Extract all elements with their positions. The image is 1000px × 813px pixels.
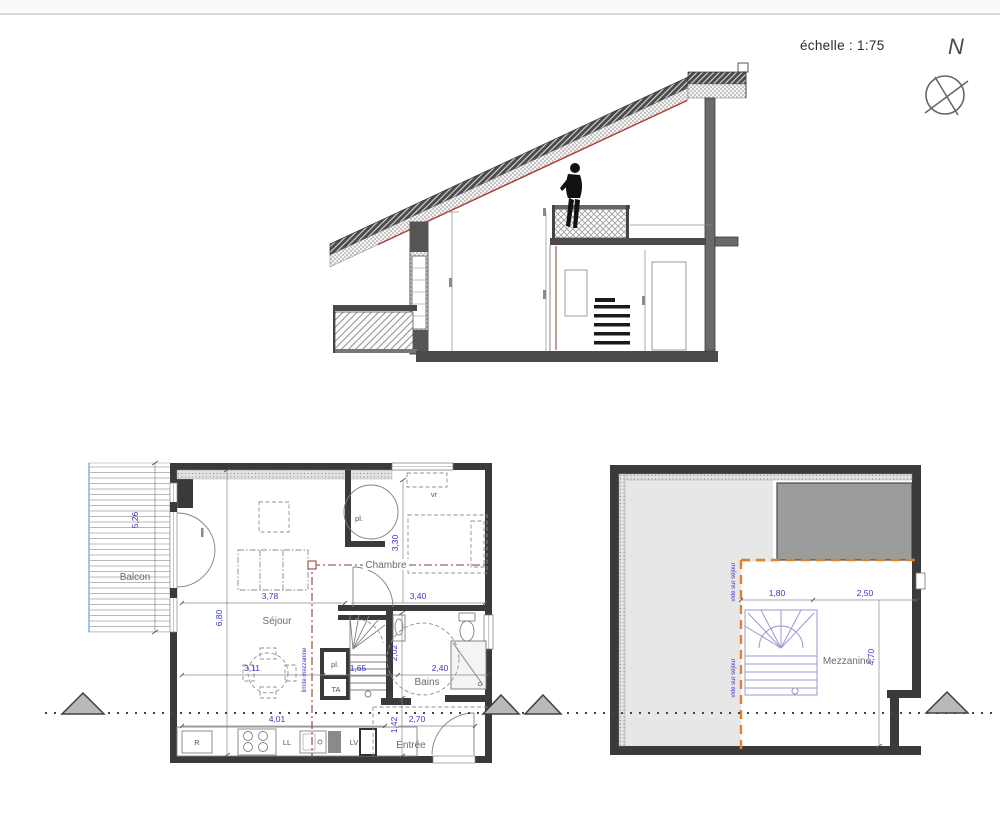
plan-lower-dimensions: 6,80 3,78 3,40 3,30 3,11 1,65 2,40 2,02 …	[180, 468, 490, 758]
low-headroom-area	[777, 483, 912, 560]
dim-kitchen-width: 4,01	[269, 714, 286, 724]
cut-marker-triangle	[523, 693, 563, 717]
roof-window	[407, 473, 447, 487]
dim-mezz-left: 1,80	[769, 588, 786, 598]
dim-bains-width: 2,40	[432, 663, 449, 673]
entry-door-gap	[433, 756, 475, 763]
room-label-mezzanine: Mezzanine	[823, 656, 872, 667]
dim-bains-height: 2,02	[389, 644, 399, 661]
dim-table-width: 3,11	[244, 663, 260, 673]
label-closet-stairs: pl.	[331, 660, 339, 669]
section-window	[412, 256, 426, 329]
toilet	[460, 621, 474, 641]
void-label-bottom: vide sur séjour	[731, 658, 737, 697]
section-floor-slab	[416, 351, 718, 362]
label-velux: vr	[431, 490, 438, 499]
dim-stairs-width: 1,65	[350, 663, 367, 673]
section-interior-panel	[565, 270, 587, 316]
upper-window	[916, 573, 925, 589]
scale-label: échelle : 1:75	[800, 38, 885, 53]
dim-sejour-height: 6,80	[214, 609, 224, 626]
kitchen: R LL LV	[177, 727, 417, 756]
dim-balcony-height: 5,26	[130, 511, 140, 528]
dim-entree-width: 2,70	[409, 714, 426, 724]
dim-entree-height: 1,42	[389, 716, 399, 733]
label-fridge: R	[194, 738, 200, 747]
cut-marker-triangle	[924, 690, 970, 716]
section-roof	[330, 63, 748, 267]
cabinet	[259, 502, 289, 532]
top-toolbar-strip	[0, 0, 1000, 15]
cut-marker-triangle	[481, 693, 521, 717]
stairs-lower	[350, 615, 386, 700]
mezzanine-edge-note: limite mezzanine	[302, 647, 308, 692]
section-door	[652, 262, 686, 350]
oven	[328, 731, 341, 753]
plan-lower: 5,26 Balcon	[55, 455, 505, 770]
sloped-ceiling-area	[625, 480, 773, 746]
plan-upper: vide sur séjour vide sur séjour 1,80 2,5…	[595, 450, 940, 765]
label-ta: TA	[331, 685, 340, 694]
closet-circle	[344, 485, 398, 539]
room-label-balcon: Balcon	[120, 572, 151, 583]
dim-sejour-width: 3,78	[262, 591, 279, 601]
section-balcony	[333, 305, 417, 353]
balcony-guardrail-hatch	[335, 312, 413, 351]
bed	[408, 515, 487, 573]
wall-insulation-strip-top	[619, 474, 912, 480]
section-stairs	[594, 298, 630, 345]
section-cut-line	[45, 712, 998, 714]
label-closet-top: pl.	[355, 514, 363, 523]
cut-marker-triangle	[60, 691, 106, 717]
dim-mezz-right: 2,50	[857, 588, 874, 598]
mezzanine-guardrail-hatch	[554, 209, 628, 238]
room-label-entree: Entrée	[396, 740, 426, 751]
wall-insulation-strip-left	[619, 474, 625, 746]
section-drawing	[318, 58, 758, 368]
label-washer: LL	[283, 738, 291, 747]
balcony-area: 5,26 Balcon	[88, 461, 170, 634]
drawing-canvas: échelle : 1:75 N	[0, 0, 1000, 813]
label-dishwasher: LV	[350, 738, 359, 747]
sofa	[238, 550, 308, 590]
room-label-chambre: Chambre	[365, 560, 407, 571]
stairs-upper	[745, 610, 817, 695]
door-swings	[177, 513, 488, 756]
north-compass-icon	[922, 68, 972, 120]
void-label-top: vide sur séjour	[731, 562, 737, 601]
north-letter: N	[948, 34, 964, 60]
utility-box	[360, 729, 376, 755]
wall-insulation-strip	[177, 470, 392, 479]
room-label-sejour: Séjour	[263, 616, 293, 627]
room-label-bains: Bains	[414, 677, 439, 688]
dim-chambre-height: 3,30	[390, 534, 400, 551]
dim-chambre-width: 3,40	[410, 591, 427, 601]
section-right-wall	[705, 98, 738, 351]
